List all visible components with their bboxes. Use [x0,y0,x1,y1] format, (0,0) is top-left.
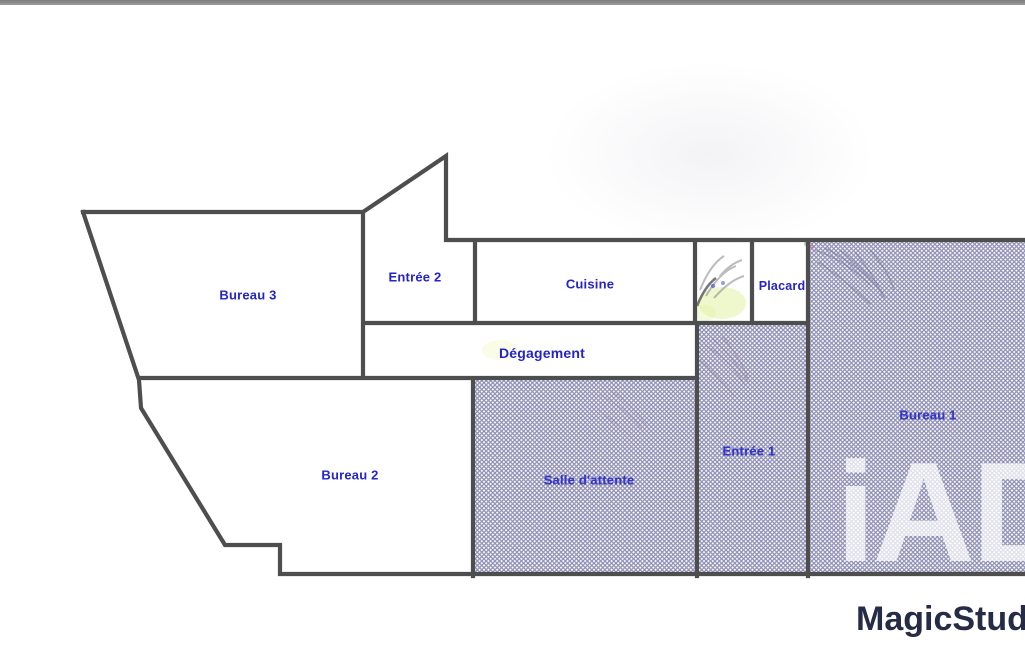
room-label-entree-2: Entrée 2 [389,270,442,285]
floorplan-drawing [0,0,1025,650]
sketch-scribble-small-room [694,256,746,321]
magicstudio-watermark: MagicStudio [856,600,1025,639]
room-label-salle-attente: Salle d'attente [544,473,635,488]
smudge-dot-pink [810,245,814,249]
room-label-bureau-1: Bureau 1 [899,408,956,423]
room-label-cuisine: Cuisine [566,277,614,292]
room-label-bureau-2: Bureau 2 [321,468,378,483]
room-label-placard: Placard [759,279,806,293]
room-label-entree-1: Entrée 1 [723,444,776,459]
floorplan-page: Bureau 3 Entrée 2 Cuisine Placard Dégage… [0,0,1025,650]
room-label-degagement: Dégagement [499,345,585,361]
room-label-bureau-3: Bureau 3 [219,288,276,303]
